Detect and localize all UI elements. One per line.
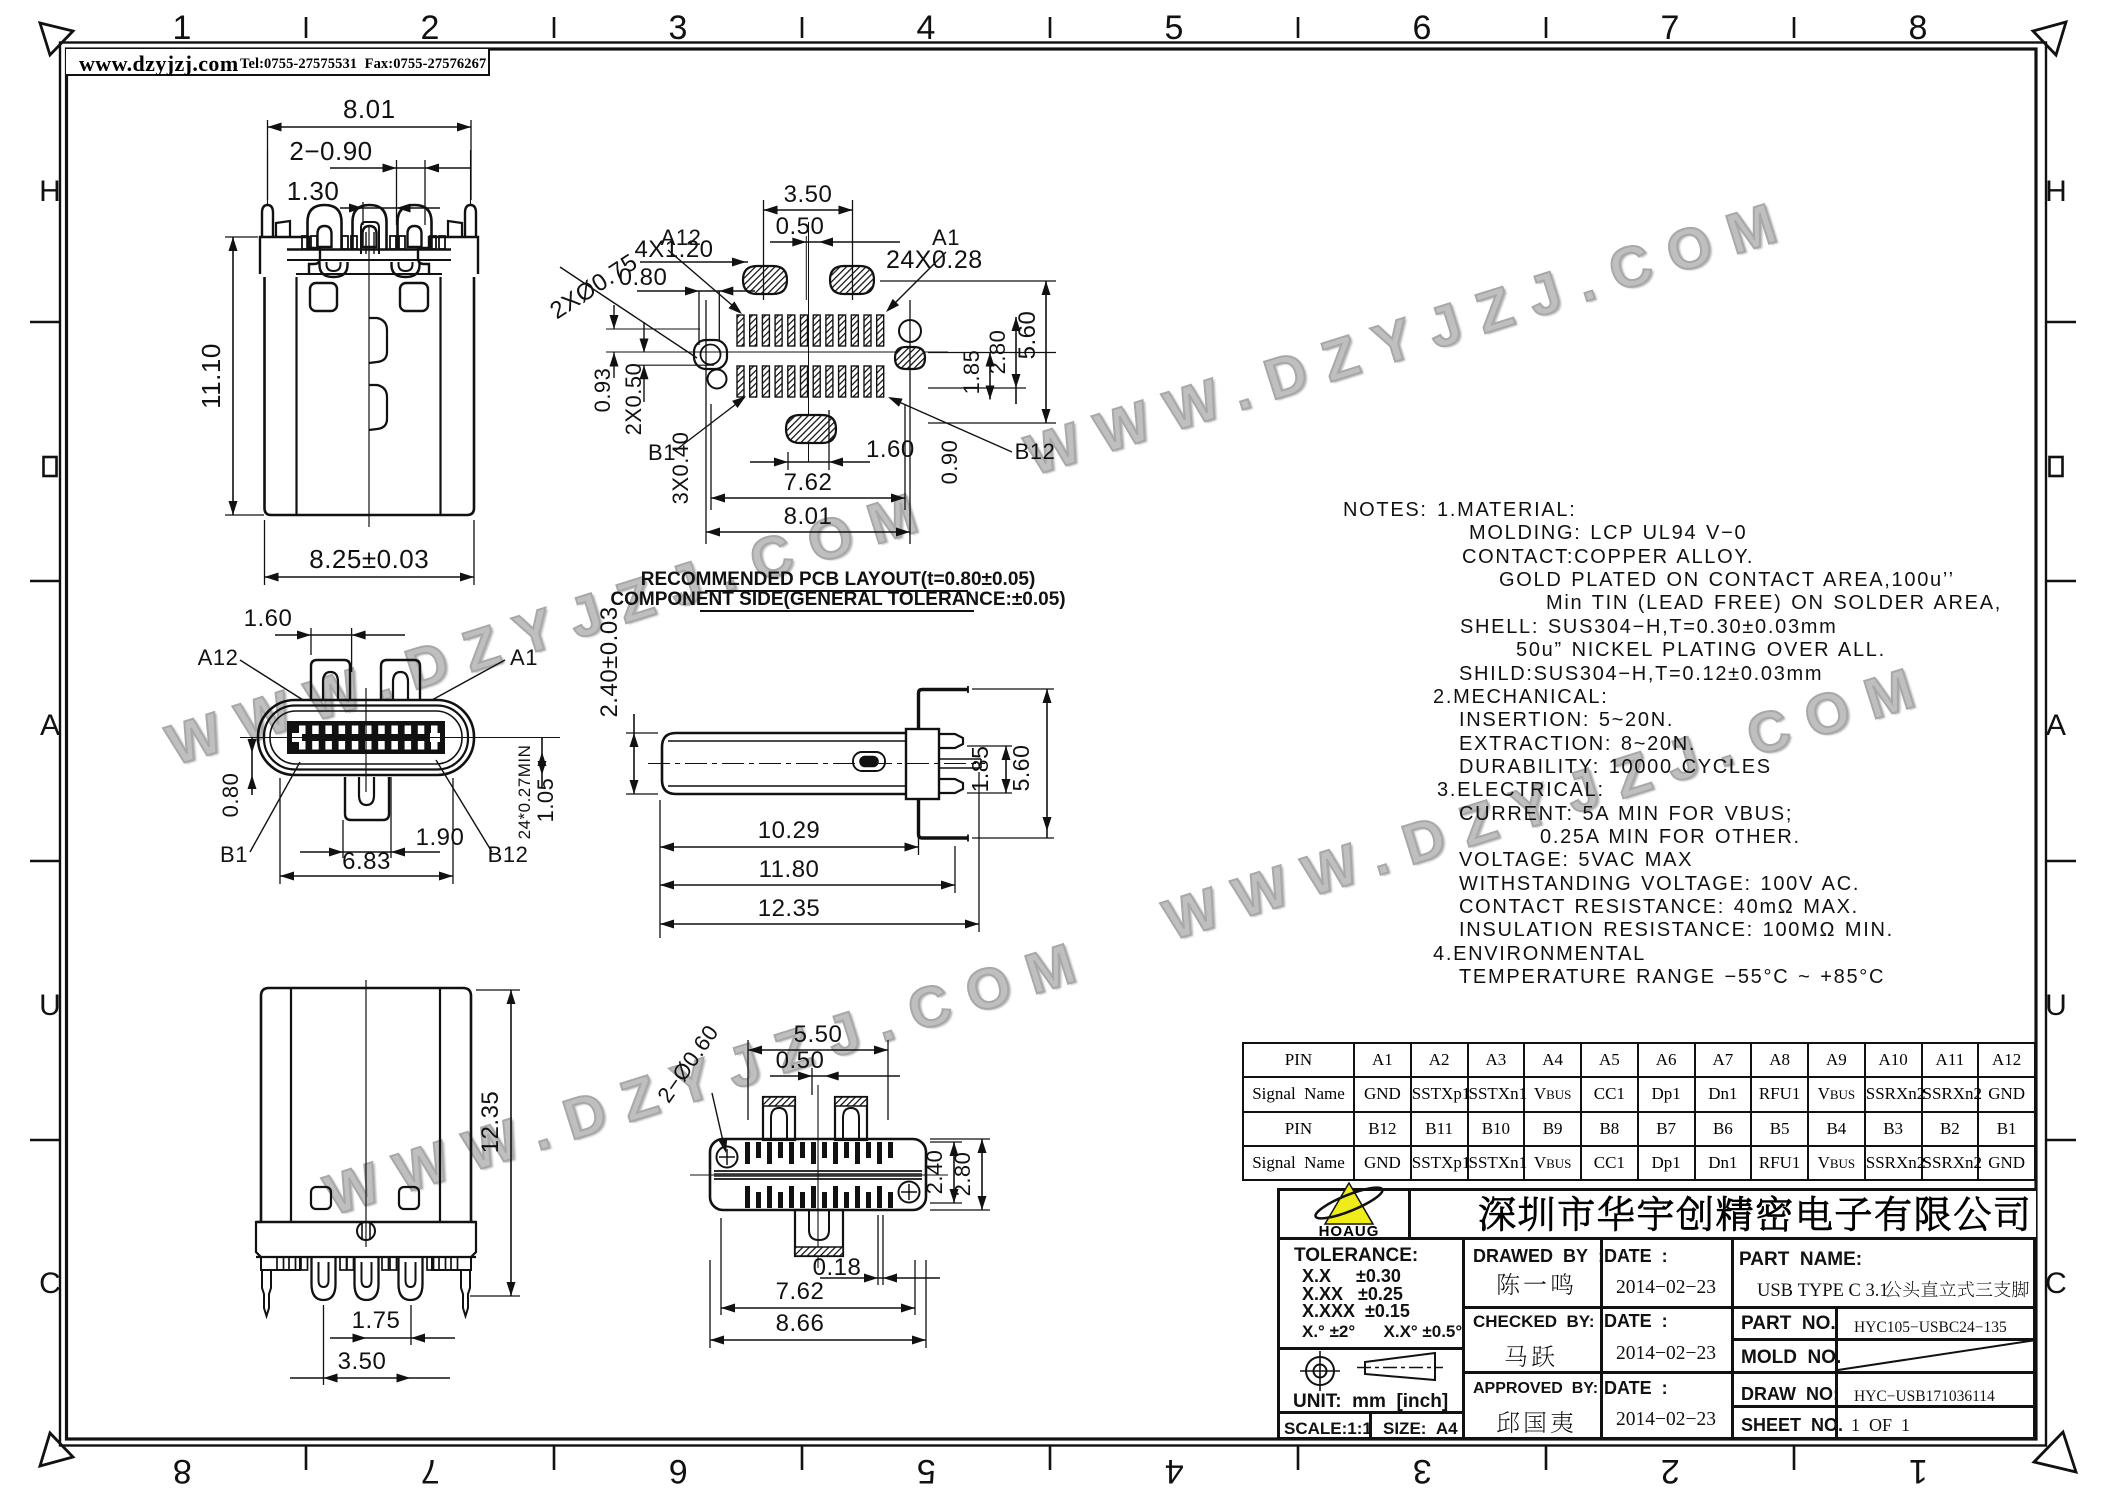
svg-text:1: 1 xyxy=(173,9,192,47)
svg-text:4: 4 xyxy=(1164,1452,1183,1488)
svg-text:5: 5 xyxy=(916,1452,935,1488)
svg-text:B1: B1 xyxy=(220,842,248,867)
svg-text:2.40±0.03: 2.40±0.03 xyxy=(596,606,623,717)
svg-text:11.10: 11.10 xyxy=(196,343,226,409)
svg-text:3.50: 3.50 xyxy=(784,181,833,208)
svg-text:0.90: 0.90 xyxy=(937,440,962,485)
svg-text:3: 3 xyxy=(1412,1452,1431,1488)
svg-text:8.25±0.03: 8.25±0.03 xyxy=(309,544,429,574)
svg-text:5: 5 xyxy=(1165,9,1184,47)
svg-text:7: 7 xyxy=(1661,9,1680,47)
svg-text:1.60: 1.60 xyxy=(244,605,293,632)
svg-text:1.60: 1.60 xyxy=(866,436,915,463)
svg-text:0.80: 0.80 xyxy=(218,773,243,818)
svg-text:12.35: 12.35 xyxy=(477,1091,504,1154)
svg-text:1.05: 1.05 xyxy=(533,778,558,823)
svg-text:C: C xyxy=(39,1267,61,1300)
svg-text:2.40: 2.40 xyxy=(922,1150,947,1195)
svg-text:0.93: 0.93 xyxy=(590,368,615,413)
svg-text:8.01: 8.01 xyxy=(343,94,396,124)
svg-text:8.66: 8.66 xyxy=(776,1310,825,1337)
svg-text:6: 6 xyxy=(668,1452,687,1488)
svg-text:A12: A12 xyxy=(198,645,239,670)
svg-text:0.50: 0.50 xyxy=(776,213,825,240)
svg-text:0.18: 0.18 xyxy=(813,1254,862,1281)
svg-text:8: 8 xyxy=(172,1452,191,1488)
svg-text:7.62: 7.62 xyxy=(776,1278,825,1305)
svg-text:3: 3 xyxy=(669,9,688,47)
svg-text:0.50: 0.50 xyxy=(776,1047,825,1074)
svg-text:4X1.20: 4X1.20 xyxy=(634,236,713,263)
svg-text:7.62: 7.62 xyxy=(784,469,833,496)
svg-text:3.50: 3.50 xyxy=(338,1348,387,1375)
svg-text:U: U xyxy=(39,989,61,1022)
svg-text:1: 1 xyxy=(1908,1452,1927,1488)
svg-text:12.35: 12.35 xyxy=(758,895,821,922)
svg-text:2.80: 2.80 xyxy=(950,1152,975,1197)
svg-text:11.80: 11.80 xyxy=(759,856,820,883)
svg-text:5.60: 5.60 xyxy=(1008,745,1034,792)
svg-text:4: 4 xyxy=(917,9,936,47)
svg-text:1.85: 1.85 xyxy=(967,746,993,793)
svg-text:A1: A1 xyxy=(510,645,538,670)
svg-text:H: H xyxy=(39,175,61,208)
svg-text:24X0.28: 24X0.28 xyxy=(886,246,983,274)
svg-text:0.80: 0.80 xyxy=(619,264,668,291)
svg-text:B12: B12 xyxy=(488,842,529,867)
svg-text:2−0.90: 2−0.90 xyxy=(289,136,372,166)
svg-text:6: 6 xyxy=(1413,9,1432,47)
svg-text:H: H xyxy=(2045,175,2067,208)
svg-text:2.80: 2.80 xyxy=(985,330,1010,375)
svg-text:1.30: 1.30 xyxy=(287,176,340,206)
svg-text:2: 2 xyxy=(421,9,440,47)
svg-text:HOAUG: HOAUG xyxy=(1319,1223,1380,1238)
svg-text:RECOMMENDED PCB LAYOUT(t=0.80±: RECOMMENDED PCB LAYOUT(t=0.80±0.05) xyxy=(641,569,1036,590)
svg-text:5.50: 5.50 xyxy=(794,1021,843,1048)
svg-text:C: C xyxy=(2045,1267,2067,1300)
svg-text:1.75: 1.75 xyxy=(352,1307,401,1334)
svg-text:COMPONENT SIDE(GENERAL TOLERAN: COMPONENT SIDE(GENERAL TOLERANCE:±0.05) xyxy=(610,589,1065,610)
svg-text:B12: B12 xyxy=(1015,439,1056,464)
svg-text:7: 7 xyxy=(420,1452,439,1488)
svg-text:8.01: 8.01 xyxy=(784,503,833,530)
svg-text:5.60: 5.60 xyxy=(1014,311,1041,360)
svg-text:10.29: 10.29 xyxy=(758,817,821,844)
svg-text:A: A xyxy=(40,709,60,742)
svg-text:24*0.27MIN: 24*0.27MIN xyxy=(515,745,534,840)
svg-text:2: 2 xyxy=(1660,1452,1679,1488)
svg-text:8: 8 xyxy=(1909,9,1928,47)
svg-text:3X0.40: 3X0.40 xyxy=(668,432,693,505)
svg-text:A: A xyxy=(2046,709,2066,742)
svg-text:1.90: 1.90 xyxy=(416,824,465,851)
svg-text:U: U xyxy=(2045,989,2067,1022)
